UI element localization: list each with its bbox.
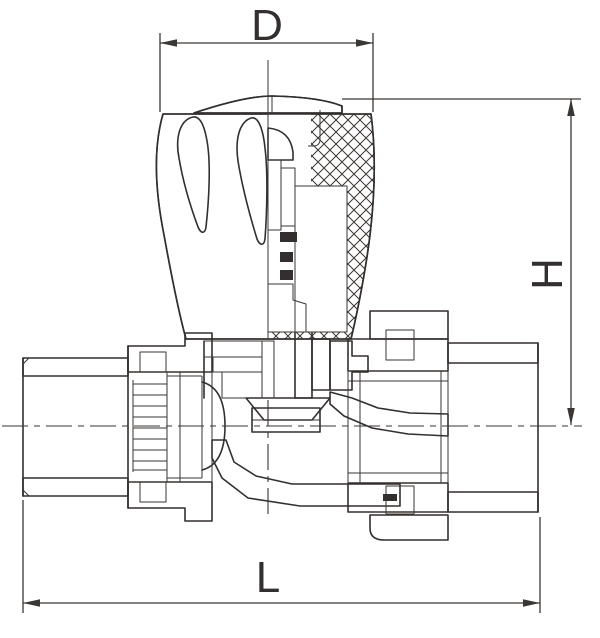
valve-technical-drawing-page: D H L <box>0 0 600 638</box>
valve-technical-drawing: D H L <box>0 0 600 638</box>
valve-body <box>204 330 448 514</box>
thread-lines <box>133 372 167 482</box>
o-ring <box>280 270 293 280</box>
stem-lower <box>262 341 274 398</box>
dimension-l: L <box>23 500 540 613</box>
dimension-d-label: D <box>251 1 283 50</box>
dimension-h-label: H <box>523 258 572 290</box>
seal-ring <box>383 494 397 501</box>
valve-seat <box>246 398 330 420</box>
right-pipe <box>448 343 538 512</box>
dimension-h: H <box>342 99 581 425</box>
finger-indent <box>237 118 267 244</box>
o-ring <box>280 252 293 262</box>
nut-gasket-top <box>140 352 166 372</box>
dimension-l-label: L <box>256 553 280 602</box>
dimension-d: D <box>160 1 373 112</box>
o-ring <box>280 232 297 242</box>
nut-gasket-bottom <box>140 482 166 502</box>
left-pipe <box>23 358 128 496</box>
right-nut-gasket-top <box>386 330 414 360</box>
finger-indent <box>178 117 210 232</box>
left-union-nut <box>128 333 225 521</box>
